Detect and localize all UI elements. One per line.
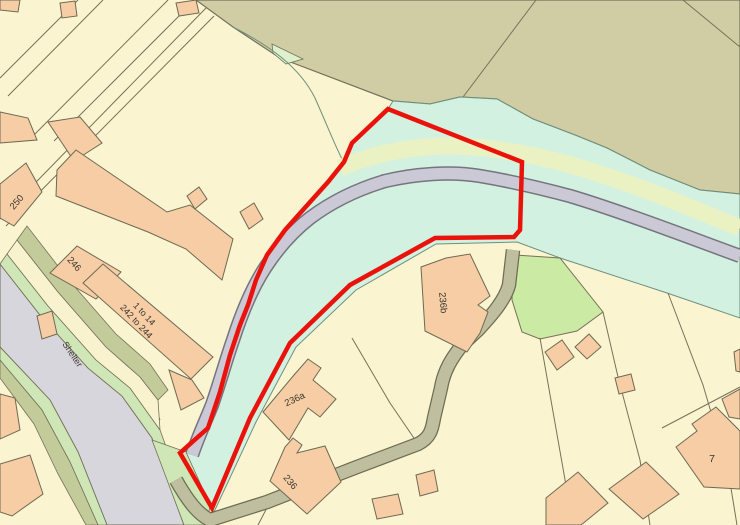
label-7: 7 bbox=[709, 453, 715, 465]
label-236b: 236b bbox=[436, 292, 449, 314]
map-canvas: 250 246 1 to 14 242 to 244 Shelter 236b … bbox=[0, 0, 740, 525]
site-plan-map: 250 246 1 to 14 242 to 244 Shelter 236b … bbox=[0, 0, 740, 525]
